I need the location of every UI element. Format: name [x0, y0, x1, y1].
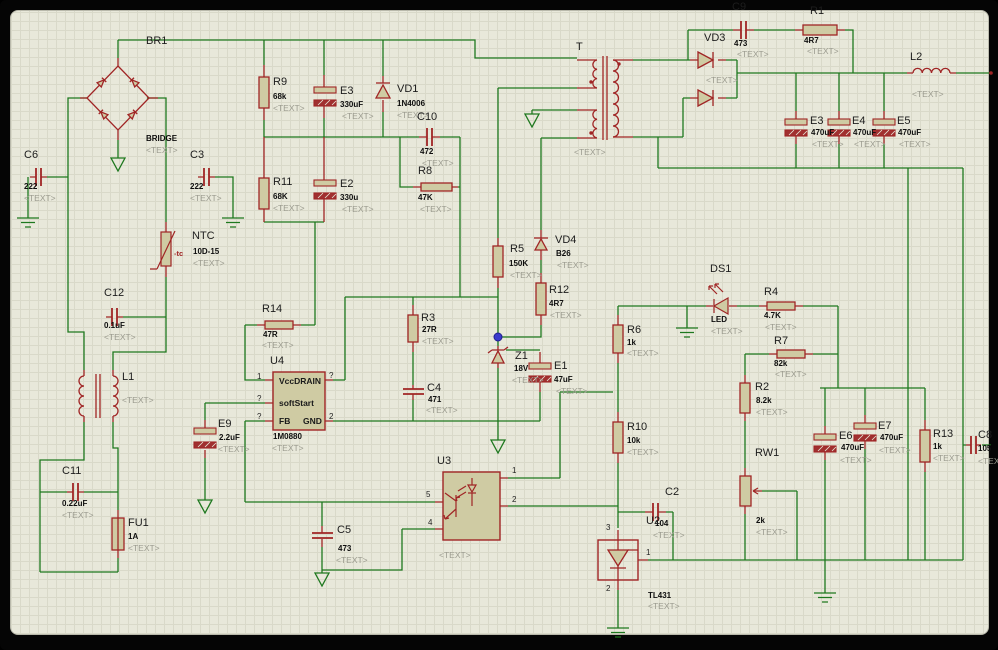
L1-symbol[interactable]	[79, 374, 118, 418]
capacitors[interactable]	[36, 21, 976, 538]
BR1-symbol[interactable]	[87, 66, 149, 130]
resistors[interactable]	[259, 25, 930, 462]
NTC-symbol[interactable]	[150, 231, 175, 269]
ground-bars	[17, 218, 836, 637]
L2-symbol[interactable]	[913, 68, 950, 73]
components	[17, 21, 993, 637]
DS1-symbol[interactable]	[709, 284, 728, 314]
U4-symbol[interactable]	[273, 372, 325, 430]
schematic-graphics	[0, 0, 998, 650]
RW1-symbol[interactable]	[740, 476, 762, 506]
U3-symbol[interactable]	[443, 472, 500, 540]
wire-endpoint	[989, 71, 993, 75]
schematic-window: BR1 BRIDGE <TEXT> C6 222 <TEXT> C3 222 <…	[0, 0, 998, 650]
U2-symbol[interactable]	[598, 540, 638, 580]
T-symbol[interactable]	[589, 56, 620, 140]
FU1-symbol[interactable]	[112, 518, 124, 550]
diodes[interactable]	[376, 52, 713, 363]
junction-dot[interactable]	[494, 333, 502, 341]
